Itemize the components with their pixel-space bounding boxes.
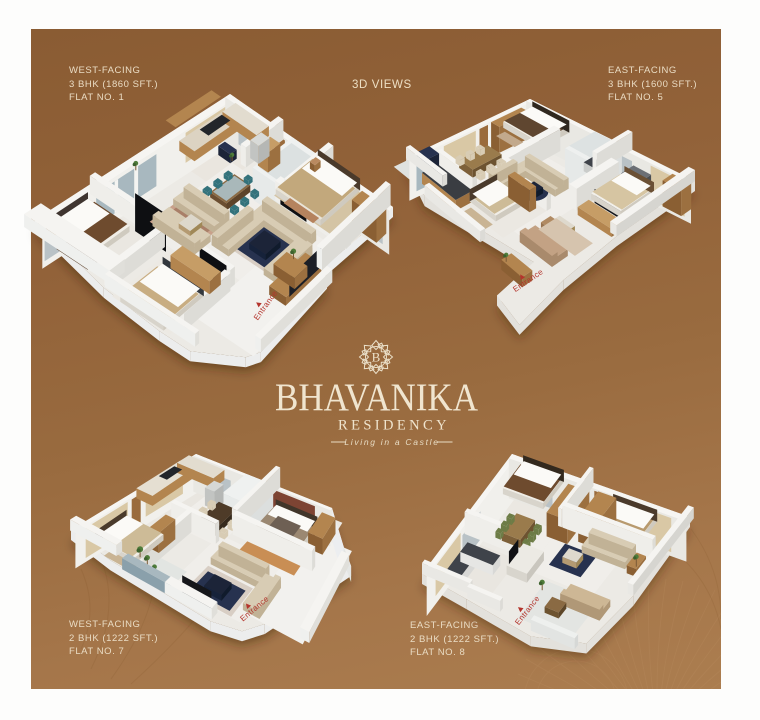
- svg-text:BHAVANIKA: BHAVANIKA: [276, 376, 478, 419]
- svg-text:Living in a Castle: Living in a Castle: [344, 437, 439, 447]
- svg-text:B: B: [372, 350, 381, 365]
- svg-text:RESIDENCY: RESIDENCY: [338, 418, 450, 434]
